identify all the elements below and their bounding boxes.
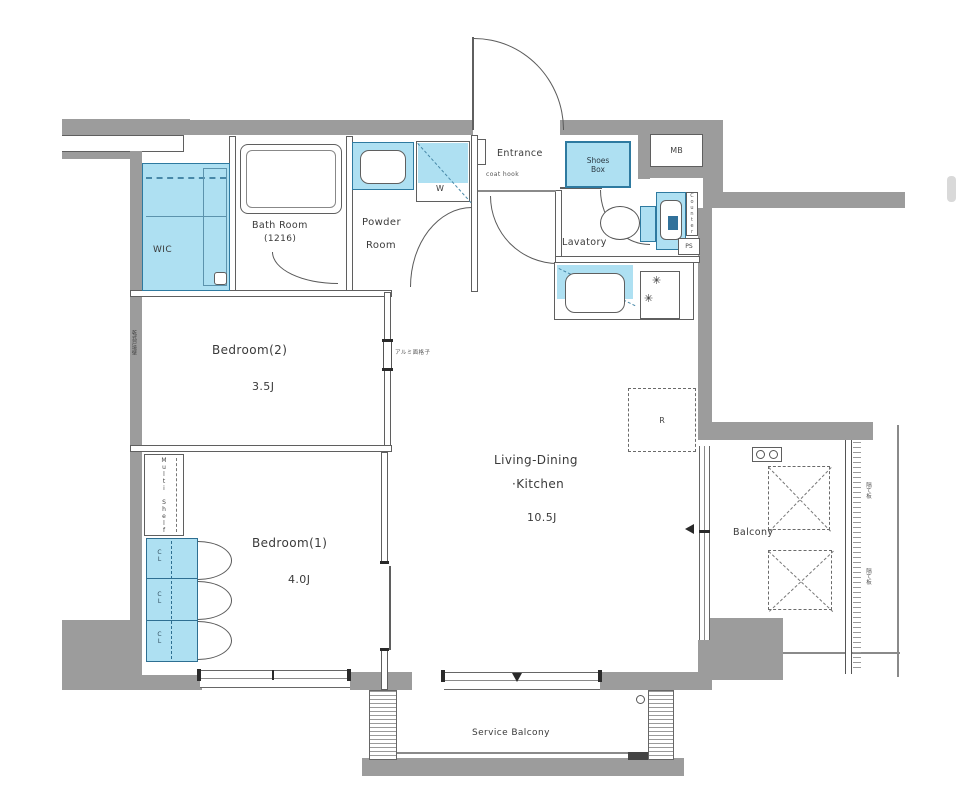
door-jamb-tick (380, 561, 389, 564)
bath-label: Bath Room (252, 220, 308, 231)
closet-hanger-pipe (171, 541, 173, 659)
wall-bottom-left-block (62, 620, 142, 675)
balcony-partition-note: 隔て板 (864, 568, 872, 585)
bedroom2-label: Bedroom(2) (212, 343, 287, 357)
window-jamb-tick (598, 670, 602, 682)
powder-label-1: Powder (362, 217, 401, 228)
window-meeting-marker (512, 673, 522, 682)
closet-label: CL (156, 631, 163, 645)
wic-stool (214, 272, 227, 285)
refrigerator-label: R (659, 416, 665, 425)
service-balcony-pillar-right (648, 690, 674, 760)
washer-label: W (436, 184, 444, 193)
entrance-step-line (478, 190, 556, 192)
multi-shelf-dashed-edge (176, 458, 177, 532)
drain-circle-icon (769, 450, 778, 459)
wall-balcony-top (698, 422, 873, 440)
kitchen-sink (565, 273, 625, 313)
ldk-label-1: Living-Dining (494, 453, 578, 467)
wall-bedroom-divider (130, 445, 392, 452)
multi-shelf: Multi Shelf (144, 454, 184, 536)
powder-basin (360, 150, 406, 184)
service-balcony-label: Service Balcony (472, 728, 550, 738)
closet-label: CL (156, 591, 163, 605)
shoes-box-label-1: Shoes (587, 156, 610, 165)
shoes-box-label-2: Box (591, 165, 605, 174)
floor-plan: Entrance coat hook Shoes Box MB WIC Bath… (0, 0, 956, 791)
wall-top-main (142, 120, 473, 135)
bedroom1-window-mid-line (200, 678, 350, 679)
meter-box: MB (650, 134, 703, 167)
balcony-window-mid-line (704, 446, 705, 640)
balcony-floor-line (783, 652, 900, 654)
window-meeting-marker (685, 524, 694, 534)
counter-label: Counter (689, 193, 695, 235)
bedroom1-size: 4.0J (288, 573, 310, 586)
building-outer-line (897, 425, 899, 677)
wall-corridor (723, 192, 905, 208)
balcony-railing-hatch (853, 442, 861, 672)
drain-circle-icon (756, 450, 765, 459)
wall-right-upper (703, 120, 723, 208)
shoes-box: Shoes Box (565, 141, 631, 188)
wall-balcony-bottom-block (710, 618, 783, 680)
wall-bottom-mid-right (600, 672, 712, 690)
party-wall-note: 乾式戸境壁 (131, 330, 138, 355)
ldk-size: 10.5J (527, 511, 557, 524)
balcony-partition-note: 隔て板 (864, 482, 872, 499)
balcony-label: Balcony (733, 527, 773, 538)
wall-service-balcony-bottom (362, 758, 684, 776)
washer-space-fill (418, 143, 468, 183)
closet-label: CL (156, 549, 163, 563)
window-jamb-tick (197, 669, 201, 681)
bedroom2-size: 3.5J (252, 380, 274, 393)
wall-top-right (560, 120, 723, 135)
meter-box-label: MB (670, 146, 682, 155)
closet-folding-door (198, 621, 232, 660)
wall-bedroom2-top (130, 290, 392, 297)
bedroom2-interior-window (383, 342, 392, 368)
toilet-tank (640, 206, 656, 242)
bathtub-inner (246, 150, 336, 208)
coat-hook-label: coat hook (486, 171, 519, 178)
wall-wic-bath (229, 136, 236, 292)
stove-burner-icon-1: ✳ (652, 274, 662, 287)
refrigerator-space: R (628, 388, 696, 452)
interior-window-note: アルミ面格子 (395, 348, 430, 356)
powder-label-2: Room (366, 240, 396, 251)
hall-door-arc (490, 196, 558, 264)
ldk-window-mid-line (444, 680, 600, 681)
wall-slot (62, 135, 184, 152)
stove-burner-icon-2: ✳ (644, 292, 654, 305)
bath-size: (1216) (264, 234, 296, 244)
wall-right-unit (698, 208, 712, 430)
wic-label: WIC (153, 245, 172, 255)
entrance-door-arc (474, 38, 564, 130)
balcony-hatch-panel (768, 466, 830, 530)
pipe-space: PS (678, 238, 700, 255)
pipe-space-label: PS (685, 243, 692, 250)
window-jamb-tick (382, 339, 393, 342)
bedroom1-window (200, 670, 350, 688)
wall-right-below-window (698, 640, 712, 674)
balcony-window-meeting-tick (699, 530, 710, 533)
wall-bedroom2-ldk-upper (384, 292, 391, 342)
wic-shelf-edge (203, 168, 227, 286)
ldk-bottom-window (444, 672, 600, 690)
multi-shelf-label: Multi Shelf (161, 457, 168, 534)
window-jamb-tick (347, 669, 351, 681)
lavatory-counter-strip: Counter (686, 192, 698, 236)
window-meeting-tick (272, 670, 274, 680)
toilet-bowl (600, 206, 640, 240)
balcony-railing (845, 440, 852, 674)
wall-bedroom1-ldk-upper (381, 452, 388, 564)
wall-left (130, 151, 142, 675)
service-balcony-pillar-left (369, 690, 397, 760)
window-jamb-tick (382, 368, 393, 371)
wall-bottom-left-band (62, 675, 202, 690)
bedroom1-sliding-door (389, 566, 391, 650)
lavatory-faucet (668, 216, 678, 230)
entrance-label: Entrance (497, 148, 543, 159)
bath-door-arc (272, 252, 338, 284)
ldk-label-2: ·Kitchen (512, 477, 564, 491)
wall-bedroom1-ldk-lower (381, 648, 388, 690)
service-balcony-drain (628, 752, 648, 760)
service-balcony-floor-line (397, 752, 648, 754)
lavatory-label: Lavatory (562, 237, 607, 248)
balcony-hatch-panel (768, 550, 832, 610)
bedroom1-label: Bedroom(1) (252, 536, 327, 550)
door-jamb-tick (380, 648, 389, 651)
closet-folding-door (198, 581, 232, 620)
closet-folding-door (198, 541, 232, 580)
wall-bedroom2-ldk-lower (384, 368, 391, 452)
drain-circle-icon (636, 695, 645, 704)
window-jamb-tick (441, 670, 445, 682)
entrance-mirror (477, 139, 486, 165)
powder-door-arc (410, 207, 472, 287)
right-edge-artifact (947, 176, 956, 202)
